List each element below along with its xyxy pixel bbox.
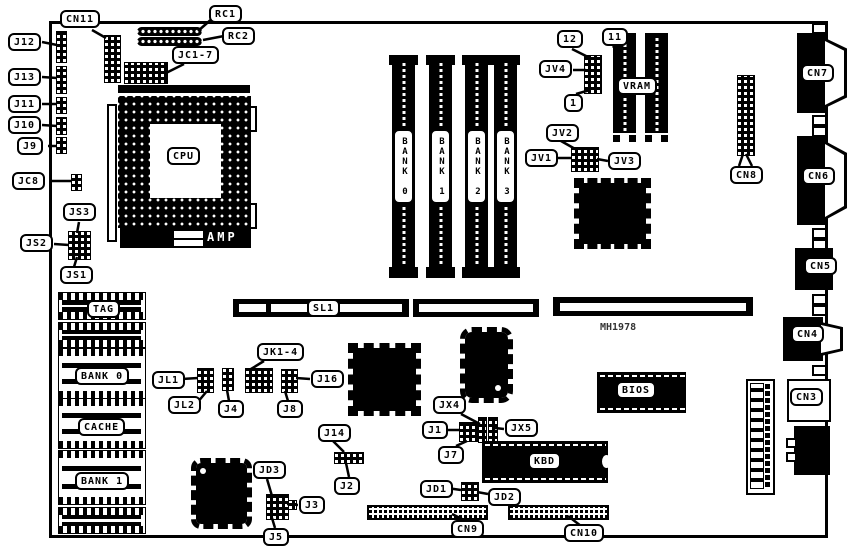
label-jx5: JX5 (505, 419, 538, 437)
label-jc8: JC8 (12, 172, 45, 190)
simm3-label: BANK 3 (495, 129, 516, 204)
label-kbd: KBD (528, 452, 561, 470)
label-rc2: RC2 (222, 27, 255, 45)
label-j12: J12 (8, 33, 41, 51)
label-jc1-7: JC1-7 (172, 46, 219, 64)
label-cn4: CN4 (791, 325, 824, 343)
label-j9: J9 (17, 137, 43, 155)
simm0-label: BANK 0 (393, 129, 414, 204)
label-jk1-4: JK1-4 (257, 343, 304, 361)
simm2-label: BANK 2 (466, 129, 487, 204)
label-cn8: CN8 (730, 166, 763, 184)
label-j14: J14 (318, 424, 351, 442)
label-rc1: RC1 (209, 5, 242, 23)
label-cn3: CN3 (790, 388, 823, 406)
label-cn11: CN11 (60, 10, 100, 28)
label-cn6: CN6 (802, 167, 835, 185)
label-js1: JS1 (60, 266, 93, 284)
label-jx4: JX4 (433, 396, 466, 414)
label-jd2: JD2 (488, 488, 521, 506)
label-j2: J2 (334, 477, 360, 495)
label-mh1978: MH1978 (600, 322, 636, 333)
label-bank0-cache: BANK 0 (75, 367, 129, 385)
label-bank1-cache: BANK 1 (75, 472, 129, 490)
label-jd3: JD3 (253, 461, 286, 479)
label-12: 12 (557, 30, 583, 48)
label-j8: J8 (277, 400, 303, 418)
label-1: 1 (564, 94, 583, 112)
label-cn7: CN7 (801, 64, 834, 82)
label-j16: J16 (311, 370, 344, 388)
label-j4: J4 (218, 400, 244, 418)
label-bios: BIOS (616, 381, 656, 399)
label-j10: J10 (8, 116, 41, 134)
motherboard-diagram: AMP BANK 0 BANK 1 BANK 2 BANK 3 (0, 0, 848, 555)
label-jl1: JL1 (152, 371, 185, 389)
label-j13: J13 (8, 68, 41, 86)
label-j11: J11 (8, 95, 41, 113)
label-sl1: SL1 (307, 299, 340, 317)
label-jv4: JV4 (539, 60, 572, 78)
label-js3: JS3 (63, 203, 96, 221)
label-cpu: CPU (167, 147, 200, 165)
label-jv3: JV3 (608, 152, 641, 170)
label-jl2: JL2 (168, 396, 201, 414)
label-jv2: JV2 (546, 124, 579, 142)
label-tag: TAG (87, 300, 120, 318)
label-vram: VRAM (617, 77, 657, 95)
label-j1: J1 (422, 421, 448, 439)
label-js2: JS2 (20, 234, 53, 252)
label-j5: J5 (263, 528, 289, 546)
label-j3: J3 (299, 496, 325, 514)
leader-lines (0, 0, 848, 555)
label-jd1: JD1 (420, 480, 453, 498)
label-11: 11 (602, 28, 628, 46)
label-cache: CACHE (78, 418, 125, 436)
label-cn5: CN5 (804, 257, 837, 275)
label-j7: J7 (438, 446, 464, 464)
label-cn9: CN9 (451, 520, 484, 538)
simm1-label: BANK 1 (430, 129, 451, 204)
label-cn10: CN10 (564, 524, 604, 542)
label-jv1: JV1 (525, 149, 558, 167)
